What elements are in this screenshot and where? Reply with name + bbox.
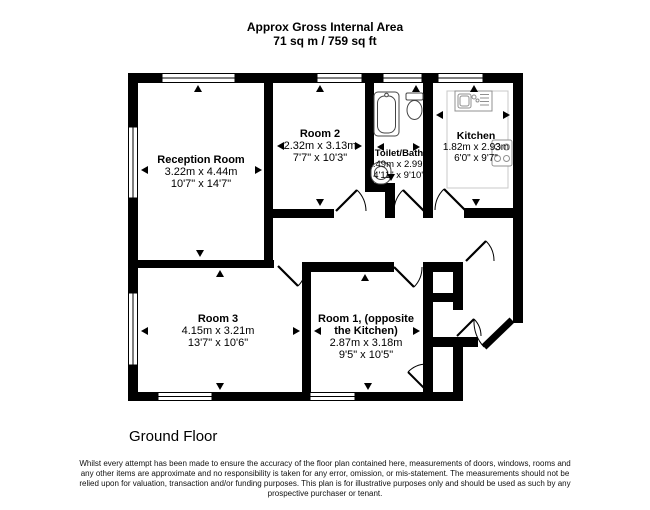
door-toilet — [394, 190, 424, 211]
room-1-name2: the Kitchen) — [334, 325, 398, 337]
room-3-metric: 4.15m x 3.21m — [182, 325, 255, 337]
disclaimer-line: relied upon for valuation, transaction a… — [0, 479, 650, 489]
disclaimer: Whilst every attempt has been made to en… — [0, 459, 650, 499]
bathtub-icon — [374, 92, 399, 136]
room-labels: Reception Room 3.22m x 4.44m 10'7" x 14'… — [157, 128, 509, 361]
floorplan-page: Approx Gross Internal Area 71 sq m / 759… — [0, 0, 650, 510]
room-kitchen-name: Kitchen — [457, 130, 496, 142]
doors — [278, 189, 512, 390]
room-reception-imperial: 10'7" x 14'7" — [171, 178, 231, 190]
room-toilet-name: Toilet/Bath — [375, 148, 424, 159]
door-room3 — [278, 266, 306, 286]
disclaimer-line: Whilst every attempt has been made to en… — [0, 459, 650, 469]
window — [383, 74, 422, 83]
room-1-imperial: 9'5" x 10'5" — [339, 349, 393, 361]
room-3-imperial: 13'7" x 10'6" — [188, 337, 248, 349]
disclaimer-line: prospective purchaser or tenant. — [0, 489, 650, 499]
window — [317, 74, 362, 83]
walls — [128, 73, 523, 401]
room-1-name: Room 1, (opposite — [318, 313, 414, 325]
room-reception-name: Reception Room — [157, 154, 245, 166]
room-1-metric: 2.87m x 3.18m — [330, 337, 403, 349]
window — [162, 74, 235, 83]
room-toilet-metric: 1.49m x 2.99m — [368, 159, 431, 170]
door-entry — [474, 320, 512, 347]
door-corridor — [466, 241, 494, 261]
door-room2 — [336, 190, 366, 211]
room-reception-metric: 3.22m x 4.44m — [165, 166, 238, 178]
room-2-name: Room 2 — [300, 128, 340, 140]
door-kitchen — [435, 189, 465, 210]
floorplan-svg: Reception Room 3.22m x 4.44m 10'7" x 14'… — [0, 0, 650, 510]
window — [438, 74, 483, 83]
toilet-icon — [406, 93, 423, 120]
room-2-imperial: 7'7" x 10'3" — [293, 152, 347, 164]
floor-label: Ground Floor — [129, 428, 217, 445]
room-3-name: Room 3 — [198, 313, 238, 325]
window — [310, 393, 355, 401]
room-kitchen-metric: 1.82m x 2.93m — [443, 142, 509, 153]
room-kitchen-imperial: 6'0" x 9'7" — [454, 153, 498, 164]
window — [158, 393, 212, 401]
room-toilet-imperial: 4'11" x 9'10" — [373, 170, 424, 181]
window — [129, 293, 138, 365]
door-closet — [457, 319, 481, 336]
window — [129, 127, 138, 198]
room-2-metric: 2.32m x 3.13m — [284, 140, 357, 152]
kitchen-sink-icon — [455, 91, 492, 111]
disclaimer-line: any other items are approximate and no r… — [0, 469, 650, 479]
door-room1 — [394, 267, 422, 287]
